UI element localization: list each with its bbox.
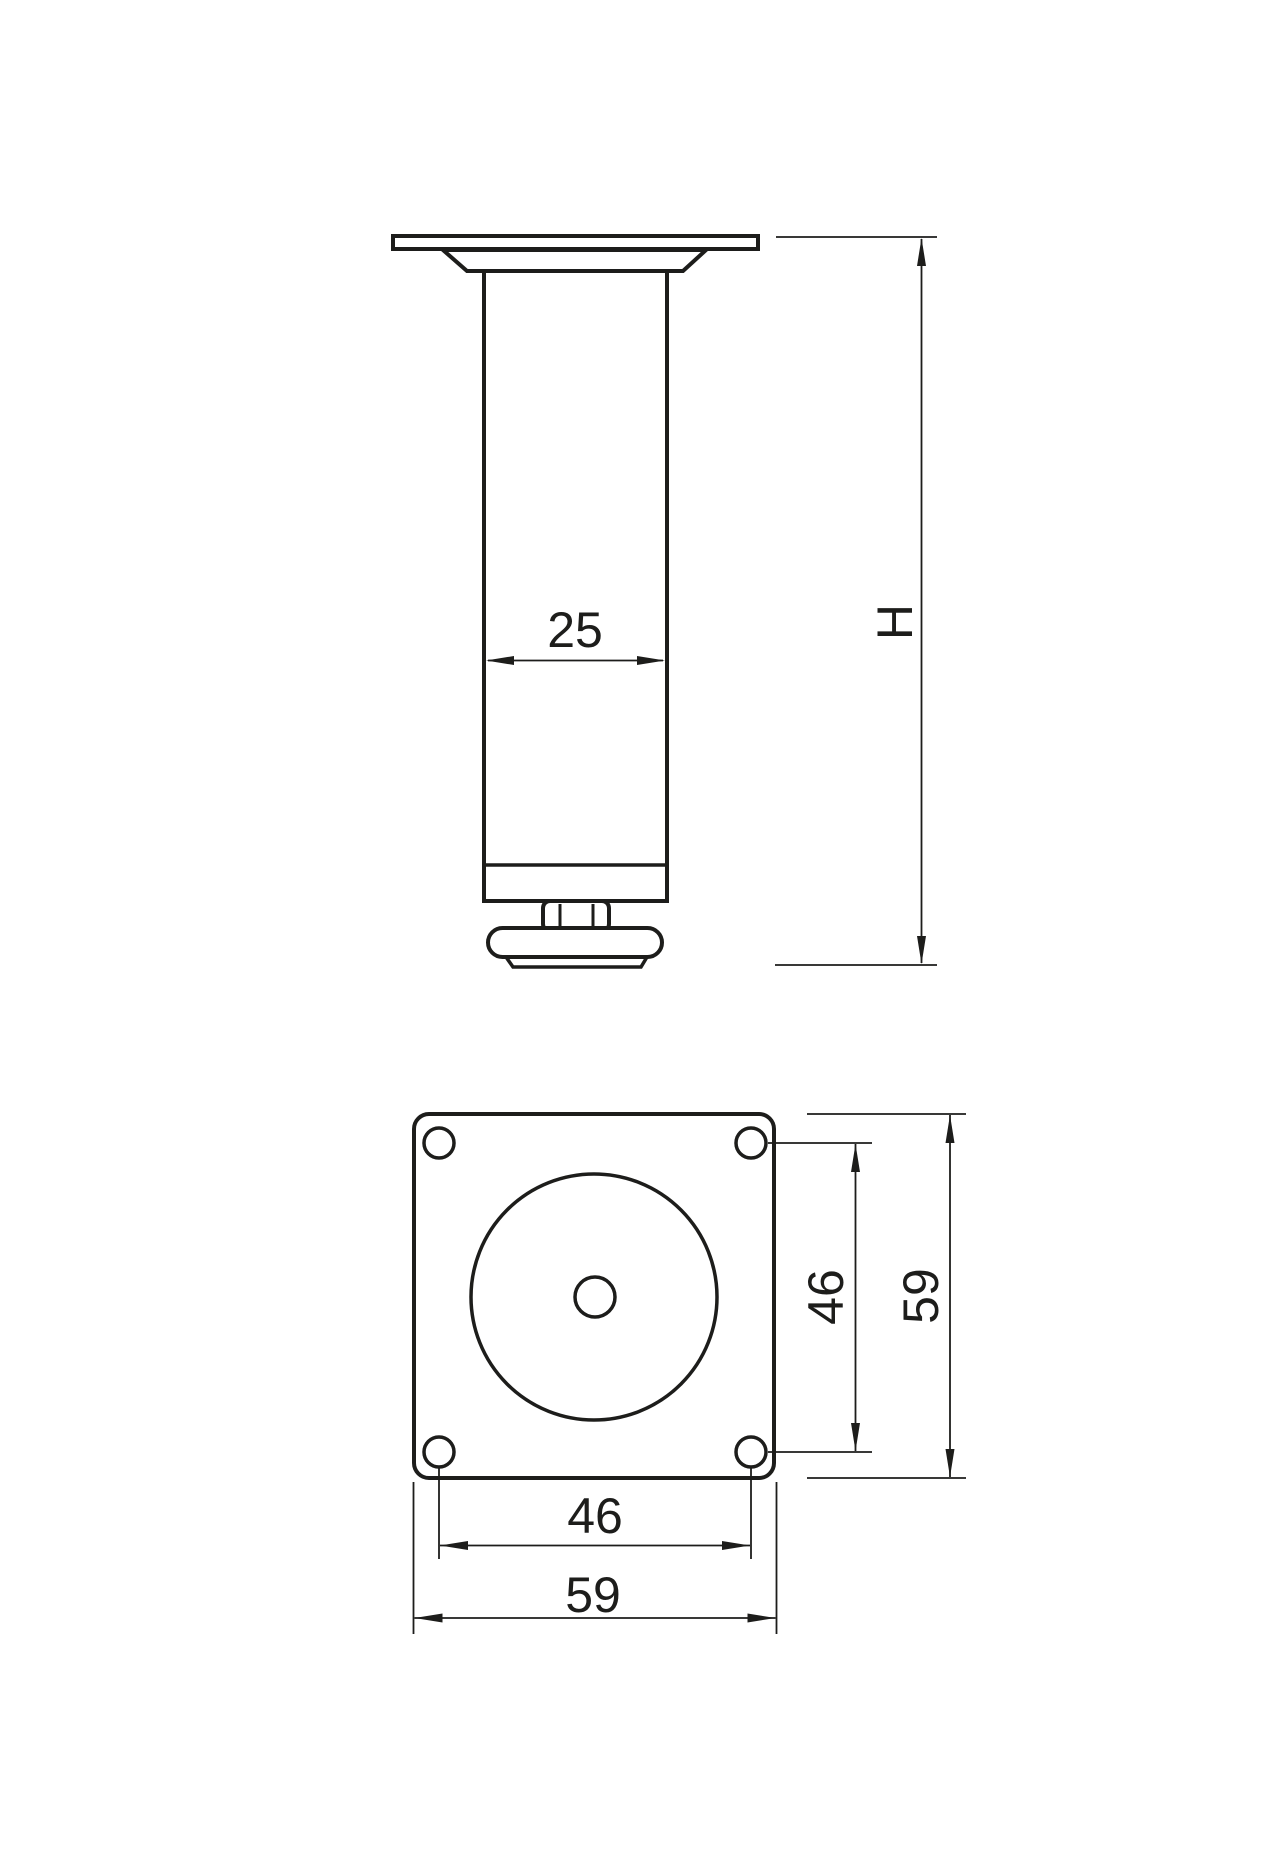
- mounting-plate-side: [393, 236, 758, 249]
- dim-46v-label: 46: [798, 1269, 854, 1325]
- leg-tube: [484, 269, 667, 901]
- screw-hole-bottom-left: [424, 1437, 454, 1467]
- mounting-cone: [443, 250, 706, 271]
- dim-hole-spacing-horizontal: 46: [439, 1467, 751, 1559]
- screw-hole-top-left: [424, 1128, 454, 1158]
- dim-59v-label: 59: [893, 1268, 949, 1324]
- dim-H-label: H: [867, 604, 923, 640]
- dim-46h-arrow-left: [440, 1541, 468, 1550]
- screw-hole-bottom-right: [736, 1437, 766, 1467]
- dim-46v-arrow-up: [851, 1144, 860, 1172]
- plate-top-view: [414, 1114, 774, 1478]
- dim-59v-arrow-up: [946, 1115, 955, 1143]
- dim-hole-spacing-vertical: 46: [768, 1143, 872, 1452]
- dim-59h-label: 59: [565, 1567, 621, 1623]
- dim-46v-arrow-down: [851, 1423, 860, 1451]
- dim-46h-arrow-right: [722, 1541, 750, 1550]
- screw-hole-top-right: [736, 1128, 766, 1158]
- dim-overall-height: H: [775, 237, 937, 965]
- dim-59h-arrow-left: [415, 1614, 443, 1623]
- foot-body: [488, 928, 662, 957]
- dim-59v-arrow-down: [946, 1449, 955, 1477]
- dim-46h-label: 46: [567, 1488, 623, 1544]
- center-hole: [575, 1277, 615, 1317]
- dim-25-label: 25: [547, 602, 603, 658]
- furniture-leg-drawing: 25 H 46: [0, 0, 1267, 1867]
- technical-drawing-page: 25 H 46: [0, 0, 1267, 1867]
- dim-59h-arrow-right: [748, 1614, 776, 1623]
- height-arrow-down: [917, 936, 926, 964]
- height-arrow-up: [917, 238, 926, 266]
